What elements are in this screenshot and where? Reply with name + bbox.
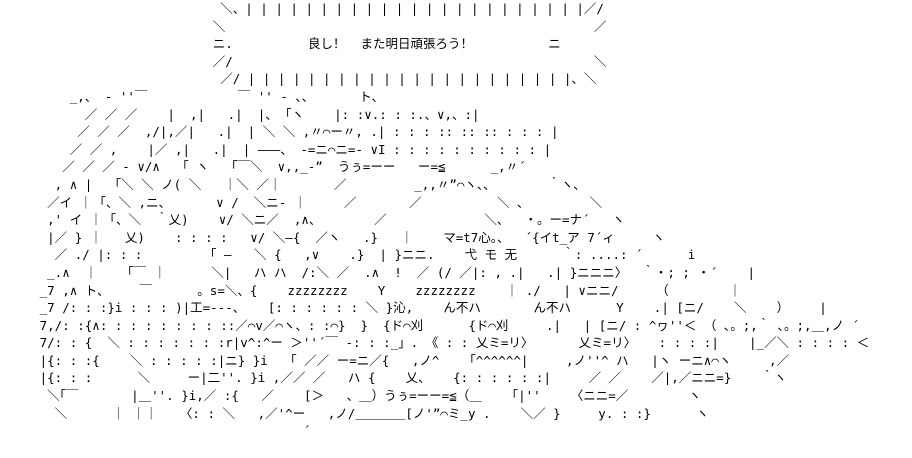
ascii-art-canvas: ＼、| | | | | | | | | | | | | | | | | | | …	[0, 0, 912, 458]
ascii-art: ＼、| | | | | | | | | | | | | | | | | | | …	[0, 0, 912, 440]
